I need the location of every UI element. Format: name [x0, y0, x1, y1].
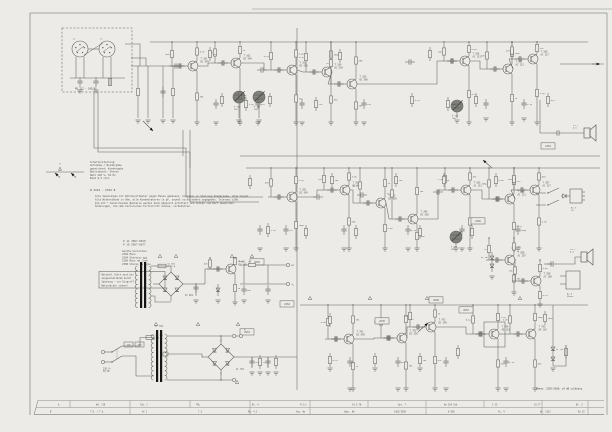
component-label: 47k [473, 177, 478, 179]
junction-dot [513, 167, 514, 168]
transistor-symbol [287, 192, 297, 202]
junction-dot [234, 257, 235, 258]
[object Object] [305, 228, 308, 235]
[object Object] [409, 312, 412, 319]
component-label: 6,8k [499, 180, 505, 182]
component-label: Gez. Ws [296, 411, 306, 414]
junction-dot [348, 167, 349, 168]
junction-dot [171, 41, 172, 42]
junction-dot [77, 52, 78, 53]
[object Object] [513, 222, 516, 229]
component-label: 15k [359, 106, 364, 108]
component-label: 2652 [463, 309, 469, 312]
terminal-circle [101, 360, 104, 363]
component-label: 0,1µ [466, 320, 472, 322]
component-label: 10k [409, 366, 414, 368]
component-label: T 207AC 117 [543, 182, 552, 188]
component-label: 2262 [284, 303, 290, 306]
component-label: T 208AC 187 [518, 252, 527, 258]
wire [347, 341, 353, 345]
component-label: 220 [367, 104, 372, 106]
wire [557, 257, 581, 264]
component-label: 22n [501, 364, 506, 366]
[object Object] [275, 358, 278, 365]
component-label: 3,3k [509, 362, 515, 364]
component-label: 100µ [451, 104, 457, 106]
junction-dot [536, 41, 537, 42]
component-label: T 201BC 549 [300, 189, 309, 195]
terminal-circle [286, 263, 289, 266]
component-label: 2610 [244, 331, 250, 334]
wire [400, 340, 406, 344]
terminal-circle [239, 334, 242, 337]
[object Object] [352, 316, 355, 323]
component-label: 2630 [379, 320, 385, 323]
component-label: 2,2µ [299, 54, 305, 56]
component-label: 220 V~50 Hz [103, 368, 112, 374]
[object Object] [539, 264, 542, 271]
wire [263, 91, 265, 93]
junction-dot [468, 41, 469, 42]
[object Object] [269, 96, 272, 103]
[object Object] [355, 228, 358, 235]
[object Object] [348, 173, 351, 180]
wire [429, 322, 435, 326]
component-label: TRL [196, 404, 201, 407]
[object Object] [352, 362, 355, 369]
component-label: 6,8k [321, 322, 327, 324]
[object Object] [239, 46, 242, 53]
component-label: P 20125k [451, 247, 458, 252]
wire [534, 283, 540, 287]
[object Object] [419, 228, 422, 235]
testpoint-marker [308, 296, 312, 299]
legend-marker [59, 167, 62, 170]
component-label: T 209AC 188 [544, 273, 553, 279]
component-label: Di 705 [556, 349, 564, 351]
component-label: 560 [359, 61, 364, 63]
wire [534, 276, 540, 280]
testpoint-marker [250, 254, 254, 257]
junction-dot [391, 167, 392, 168]
wire [492, 336, 498, 340]
wire [76, 46, 84, 52]
junction-dot [220, 335, 221, 336]
[object Object] [513, 243, 516, 250]
transistor-symbol [231, 58, 241, 68]
[object Object] [248, 264, 255, 267]
din-socket-symbol [570, 189, 582, 203]
component-label: 1n [484, 249, 487, 251]
junction-dot [102, 47, 103, 48]
component-label: 1n [388, 183, 391, 185]
[object Object] [137, 88, 140, 95]
component-label: Bl. 2 [576, 404, 583, 407]
wire [243, 91, 245, 93]
component-label: −L [291, 283, 295, 287]
[object Object] [488, 245, 491, 252]
component-label: Bu 3LS [571, 208, 577, 213]
wire [533, 185, 539, 189]
wire [125, 44, 140, 66]
component-label: 15k [318, 179, 323, 181]
component-label: Alle Widerstände in Ohm, alle Kondensato… [95, 197, 240, 201]
component-label: S 12 [492, 404, 498, 407]
transistor-symbol [376, 198, 386, 208]
component-label: 7.2 [198, 411, 203, 414]
[object Object] [497, 360, 500, 367]
component-label: K 605 [448, 411, 455, 414]
[object Object] [538, 218, 541, 225]
component-label: T 701BC 548 [357, 331, 366, 337]
component-label: 1k [263, 362, 266, 364]
junction-dot [196, 41, 197, 42]
[object Object] [209, 50, 212, 57]
component-label: T 703BC 140 [439, 319, 448, 325]
[object Object] [355, 102, 358, 109]
component-label: 560 [335, 180, 340, 182]
junction-dot [509, 304, 510, 305]
testpoint-marker [518, 296, 522, 299]
wire [379, 205, 385, 209]
wire [379, 198, 385, 202]
schematic-canvas: 6Wd. 719Tgl. CTRLBl. 4M 1:114.3.78Gpr. 7… [0, 0, 612, 432]
drawing-number: W 2312 - 2332 B [90, 188, 116, 192]
component-label: 47k [261, 104, 266, 106]
component-label: 1n [356, 366, 359, 368]
junction-dot [444, 167, 445, 168]
component-label: 4,7k [353, 186, 359, 188]
component-label: a [59, 163, 61, 166]
component-label: 3,3k [503, 320, 509, 322]
[object Object] [348, 218, 351, 225]
component-label: T 102BC 549 [244, 55, 253, 61]
transistor-symbol [461, 185, 471, 195]
junction-dot [106, 44, 107, 45]
component-label: T 105BC 560 [360, 76, 369, 82]
transistor-symbol [460, 56, 470, 66]
[object Object] [331, 176, 334, 183]
transistor-symbol [505, 255, 515, 265]
component-label: 0,1µ [299, 180, 305, 182]
component-label: Alle Spannungen mit Röhrenvoltmeter gege… [95, 194, 250, 198]
[object Object] [416, 232, 419, 239]
component-label: T 204BC 550 [421, 211, 430, 217]
component-label: 0,1µ [415, 100, 421, 102]
component-label: 1k [515, 98, 518, 100]
component-label: 470 [334, 100, 339, 102]
transistor-symbol [347, 79, 357, 89]
component-label: 3,3k [542, 222, 548, 224]
testpoint-marker [368, 296, 372, 299]
junction-dot [323, 167, 324, 168]
[object Object] [221, 96, 224, 103]
wire [436, 327, 470, 334]
transistor-symbol [408, 214, 418, 224]
component-label: P 10 2967-0077 [123, 243, 146, 247]
component-label: 0,1µ [517, 226, 523, 228]
component-label: T 101BC 549 [201, 58, 210, 64]
component-label: 560 [352, 222, 357, 224]
component-label: 6,8k [543, 268, 549, 270]
component-label: 560 [508, 179, 513, 181]
transistor-symbol [340, 185, 350, 195]
junction-dot [111, 351, 112, 352]
[object Object] [259, 358, 262, 365]
component-label: 470 [551, 100, 556, 102]
wire [470, 61, 484, 69]
switch-arrow-icon [597, 63, 600, 66]
junction-dot [538, 167, 539, 168]
testpoint-marker [174, 254, 178, 257]
component-label: 6 [58, 404, 60, 407]
wire [151, 296, 171, 302]
jack-socket-symbol [566, 271, 580, 289]
component-label: 2,2µ [527, 104, 533, 106]
component-label: 1k [438, 314, 441, 316]
component-label: 2266 [475, 220, 481, 223]
component-label: ausgeschaltetem Gerät [102, 277, 132, 280]
component-label: 110 [127, 344, 132, 347]
junction-dot [384, 167, 385, 168]
wire [357, 61, 441, 84]
wire [354, 338, 378, 339]
component-label: 0,1µ [264, 56, 270, 58]
head-assembly-label: PU 212 - 242/US [75, 88, 97, 91]
component-label: 1n [326, 63, 329, 65]
junction-dot [486, 41, 487, 42]
component-label: 3,3k [271, 230, 277, 232]
transistor-symbol [188, 61, 198, 71]
terminal-circle [101, 350, 104, 353]
wire [241, 63, 268, 70]
component-label: P 10310k [452, 116, 459, 121]
[object Object] [538, 173, 541, 180]
component-label: 10k [509, 271, 514, 273]
component-label: Tr 701 [155, 325, 164, 328]
[object Object] [534, 313, 537, 320]
component-label: 2308 Stereo de luxe [122, 262, 151, 266]
junction-dot [409, 304, 410, 305]
terminal-circle [232, 334, 235, 337]
[object Object] [295, 221, 298, 228]
component-label: T 702BC 558 [410, 330, 419, 336]
[object Object] [457, 348, 460, 355]
transformer-symbol [144, 262, 146, 308]
wire [400, 333, 406, 337]
component-label: Gepr. Hb [344, 411, 355, 414]
speaker-icon [581, 252, 587, 262]
junction-dot [472, 304, 473, 305]
[object Object] [514, 267, 517, 274]
wire [350, 86, 356, 90]
wire [229, 271, 235, 275]
wire [386, 203, 389, 219]
wire [290, 72, 296, 76]
[object Object] [234, 284, 237, 291]
component-label: 47k [204, 264, 209, 266]
[object Object] [374, 356, 377, 363]
diode-symbol [563, 194, 567, 198]
junction-dot [539, 259, 540, 260]
component-label: 4,7k [200, 52, 206, 54]
[object Object] [270, 179, 273, 186]
junction-dot [513, 237, 514, 238]
wire [529, 329, 535, 333]
component-label: 3,3k [352, 177, 358, 179]
component-label: 100µ [521, 230, 527, 232]
terminal-circle [232, 378, 235, 381]
component-label: 15k [517, 279, 522, 281]
component-label: 10k [423, 360, 428, 362]
component-label: Si 6010,16 A [168, 263, 176, 268]
[object Object] [305, 53, 308, 60]
component-label: 6,8k [472, 49, 478, 51]
junction-dot [104, 52, 105, 53]
wire [103, 46, 111, 52]
component-label: 10.77 [534, 404, 541, 407]
component-label: 470 [542, 177, 547, 179]
wire [531, 61, 537, 65]
[object Object] [469, 173, 472, 180]
component-label: 22n [517, 181, 522, 183]
component-label: 22n [299, 99, 304, 101]
transistor-symbol [531, 276, 541, 286]
wire [429, 329, 435, 333]
[object Object] [196, 48, 199, 55]
wire [548, 200, 559, 205]
[object Object] [509, 316, 512, 323]
component-label: 100k [238, 261, 244, 263]
junction-dot [330, 41, 331, 42]
component-label: Nr. 2312 [540, 411, 551, 414]
junction-dot [109, 52, 110, 53]
terminal-circle [286, 282, 289, 285]
junction-dot [534, 304, 535, 305]
component-label: 2600 [433, 299, 439, 302]
transformer-symbol [165, 334, 167, 380]
component-label: 100k [548, 318, 554, 320]
component-label: T.O. / T.G. [90, 411, 105, 414]
speaker-icon [587, 249, 593, 265]
[object Object] [472, 316, 475, 323]
component-label: 3,3k [299, 57, 305, 59]
junction-dot [111, 361, 112, 362]
[object Object] [295, 50, 298, 57]
component-label: 47k [481, 56, 486, 58]
component-label: Tgl. C [140, 404, 149, 407]
measure-note: Messw. 2302–2308: ±4 dB zulässig [536, 388, 583, 391]
[object Object] [330, 59, 333, 66]
junction-dot [79, 44, 80, 45]
[object Object] [391, 190, 394, 197]
[object Object] [395, 176, 398, 183]
wire [297, 70, 303, 72]
[object Object] [249, 178, 252, 185]
wire [325, 67, 331, 71]
testpoint-marker [196, 322, 200, 325]
component-label: 2,2µ [540, 93, 546, 95]
[object Object] [544, 314, 547, 321]
component-label: 560 [247, 290, 252, 292]
component-label: 2302/2308 [394, 411, 407, 414]
transistor-symbol [397, 333, 407, 343]
wire [325, 74, 331, 78]
wire [122, 356, 154, 376]
[object Object] [447, 100, 450, 107]
transistor-symbol [344, 334, 354, 344]
component-label: re [100, 39, 103, 41]
wire [531, 54, 537, 58]
[object Object] [411, 96, 414, 103]
junction-dot [327, 304, 328, 305]
speaker-icon [590, 125, 596, 141]
component-label: 470 [265, 183, 270, 185]
junction-dot [220, 379, 221, 380]
wire [540, 100, 553, 133]
component-label: 4,7k [472, 94, 478, 96]
transformer-symbol [140, 262, 142, 308]
wire [553, 359, 566, 366]
wire [191, 68, 197, 72]
component-label: 10k [438, 52, 443, 54]
testpoint-marker [158, 254, 162, 257]
junction-dot [434, 304, 435, 305]
transformer-symbol [151, 334, 153, 380]
[object Object] [196, 93, 199, 100]
junction-dot [352, 304, 353, 305]
junction-dot [82, 52, 83, 53]
junction-dot [405, 304, 406, 305]
wire [234, 58, 240, 62]
[object Object] [245, 100, 248, 107]
component-label: 2264 [545, 145, 551, 148]
component-label: Di 201 [481, 257, 489, 259]
wire [350, 190, 357, 203]
component-label: LS 14 Ω [573, 125, 579, 130]
wire [508, 255, 514, 259]
[object Object] [384, 224, 387, 231]
transformer-symbol [135, 266, 137, 307]
wire [290, 199, 296, 203]
component-label: 15k [356, 320, 361, 322]
[object Object] [513, 175, 516, 182]
component-label: li [73, 39, 76, 41]
wire [328, 72, 332, 84]
component-label: 470 [538, 364, 543, 366]
[object Object] [429, 50, 432, 57]
[object Object] [416, 187, 419, 194]
wire [411, 221, 417, 225]
wire [191, 61, 197, 65]
component-label: M 1:1 [300, 404, 307, 407]
transistor-symbol [322, 67, 332, 77]
transformer-symbol [156, 330, 158, 382]
junction-dot [270, 167, 271, 168]
transformer-symbol [149, 266, 151, 307]
[object Object] [315, 100, 318, 107]
wire [411, 214, 417, 218]
junction-dot [75, 47, 76, 48]
component-label: Die mit * bezeichneten Bauteile werden b… [95, 201, 235, 205]
component-label: 22n [319, 104, 324, 106]
junction-dot [511, 41, 512, 42]
[object Object] [539, 291, 542, 298]
[object Object] [536, 44, 539, 51]
wire [198, 63, 212, 66]
wire [464, 192, 470, 196]
component-label: Band 9,5 cm/s [90, 176, 110, 180]
